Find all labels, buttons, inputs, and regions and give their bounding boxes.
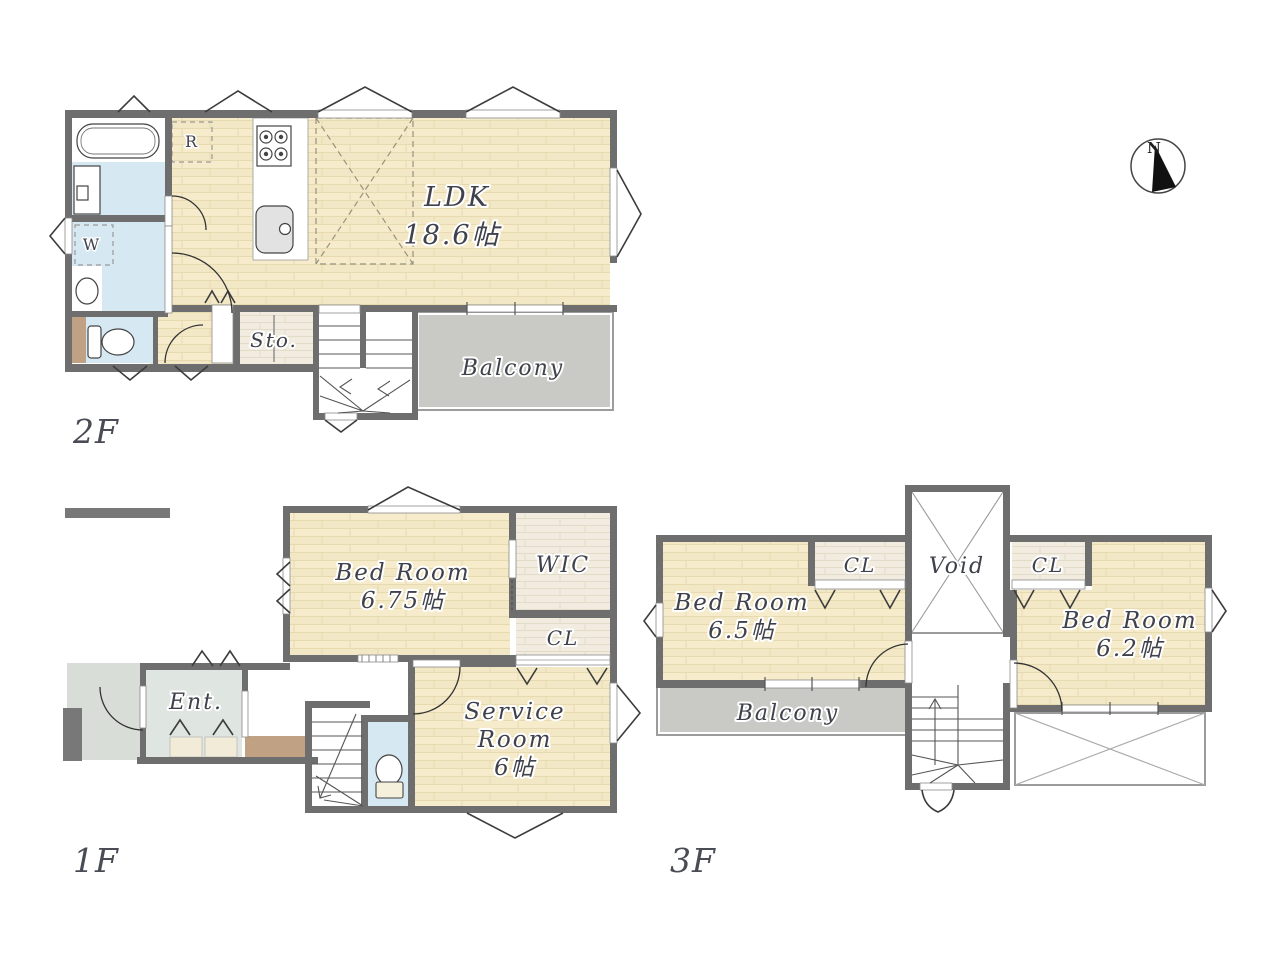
cl-3f-right-label: CL [1032,553,1065,577]
toilet-2f-step [72,317,86,363]
kitchen-sink [256,206,293,253]
storage-label: Sto. [250,328,298,352]
hall-step-brown [245,736,313,757]
bedroom-1f-label: Bed Room [334,560,470,586]
bathtub [77,124,159,158]
entrance-step-1 [170,737,202,757]
floor-label-2f: 2F [72,412,119,451]
bedroom-3f-left-label: Bed Room [673,590,809,616]
toilet-1f-fixture [376,755,403,798]
floor-label-3f: 3F [670,841,716,880]
ldk-size-label: 18.6帖 [403,220,502,251]
toilet-2f-tank [88,326,101,358]
floor-plan-drawing: N LDK 18.6帖 R W Sto. Balcony 2F Bed Room… [0,0,1280,960]
compass: N [1131,139,1185,193]
ldk-label: LDK [423,182,490,213]
balcony-2f-label: Balcony [461,356,564,381]
service-room-label-1: Service [464,699,565,725]
toilet-2f-bowl [102,329,134,355]
upper-floor-overhang-line [65,508,170,518]
compass-north-label: N [1147,139,1161,157]
bedroom-3f-right-label: Bed Room [1061,608,1197,634]
cl-3f-left-label: CL [844,553,877,577]
floor-label-1f: 1F [73,841,119,880]
wic-label: WIC [536,553,590,578]
powder-basin [76,278,98,304]
balcony-3f-label: Balcony [736,701,839,726]
service-room-label-3: 6帖 [494,755,537,781]
stove [257,126,291,166]
bedroom-3f-left-size: 6.5帖 [708,618,777,644]
washer-label: W [83,235,101,254]
entrance-step-2 [205,737,237,757]
floor-plan-page: N LDK 18.6帖 R W Sto. Balcony 2F Bed Room… [0,0,1280,960]
service-room-label-2: Room [477,727,553,753]
refrigerator-label: R [185,132,199,151]
void-label: Void [929,554,985,579]
plan-1f [63,487,640,838]
porch-wall-block [63,708,82,761]
cl-1f-label: CL [547,626,580,650]
roof-below-area [1015,713,1205,785]
entrance-label: Ent. [168,690,223,715]
bedroom-1f-size: 6.75帖 [361,588,446,614]
bedroom-3f-right-size: 6.2帖 [1096,636,1165,662]
